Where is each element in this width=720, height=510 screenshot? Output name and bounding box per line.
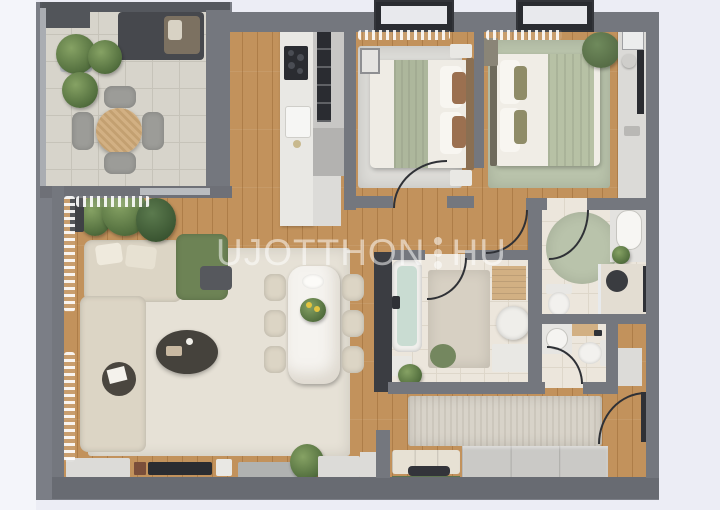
bedroom1-mirror [360,48,380,74]
bedroom1-window [374,0,454,32]
shower-toilet-bowl [548,292,570,316]
tv-console [66,458,130,478]
terrace-round-table [96,108,142,154]
terrace-chair-top [104,86,136,108]
wall-entry-living-stub [376,430,390,478]
kitchen-cabinet-gray [313,128,347,176]
shower-washbasin [616,210,642,250]
bathroom-round-seat [496,306,530,340]
bedroom1-headboard [466,58,474,170]
kitchen-faucet [293,140,301,148]
watermark-dots-icon [434,237,442,269]
wall-wc-right [606,320,618,386]
terrace-plant-2 [88,40,122,74]
room-entrance [408,396,602,446]
bedroom2-vanity-mirror [622,30,644,50]
dining-chair-r2 [342,310,364,337]
cabinet-bottom-right [318,456,360,478]
bedroom2-stool [622,54,636,68]
bedroom2-blanket [548,54,594,166]
living-curtain-left-1 [64,196,75,312]
entrance-door-leaf [641,392,646,442]
cooktop-burner-1 [288,50,294,56]
bedroom1-nightstand-bottom [450,170,472,186]
media-box [216,459,232,476]
bathtub-water [397,266,417,346]
kitchen-oven-stack [317,30,331,122]
wall-bedroom1-south-b [447,196,474,208]
wall-bedroom1-south-a [356,196,393,208]
terrace-plant-3 [62,72,98,108]
bedroom1-nightstand-top [450,44,472,58]
living-curtain-top [76,196,150,207]
terrace-sliding-door [140,188,210,195]
coffee-table-cup [186,338,193,345]
bedroom2-accent-pillow-2 [514,110,527,144]
bedroom1-window-glass [381,6,447,24]
wall-right-outer [646,12,659,478]
bedroom2-tv [637,50,644,114]
bedroom2-curtain [486,30,562,40]
wall-terrace-top-corner [42,2,90,28]
kitchen-cabinet-white [313,176,341,226]
bouquet-flower-2 [314,306,320,312]
wall-shower-wc-divider [538,314,646,324]
wall-bottom-outer [52,477,659,499]
dining-bouquet [300,298,326,322]
watermark: UJOTTHON HU [216,232,507,274]
terrace-chair-bottom [104,152,136,174]
wc-towel-item [594,330,602,336]
dining-chair-r3 [342,346,364,373]
entrance-tall-cabinet [618,348,642,386]
sofa-pillow-1 [95,242,124,265]
wall-bath-south-a [388,382,545,394]
wall-bathroom-shower-divider [528,208,542,392]
bedroom1-accent-pillow-2 [452,116,466,148]
terrace-lounge-pillow [168,20,182,40]
dining-plate [302,274,324,289]
dining-chair-l2 [264,310,286,337]
dining-chair-l3 [264,346,286,373]
bedroom2-desk-items [624,126,640,136]
bathroom-storage [492,344,530,372]
cooktop-burner-4 [297,68,303,74]
bedroom2-headboard [490,54,497,166]
wall-bath-south-b [583,382,618,394]
background-left [0,0,36,510]
cooktop-burner-3 [288,62,295,69]
bouquet-flower-1 [306,302,312,308]
tv-soundbar [148,462,212,475]
shower-drain-stool [606,270,628,292]
terrace-chair-right [142,112,164,150]
kitchen-sink [285,106,311,138]
wc-toilet-bowl [578,342,602,364]
bathroom-pouf [430,344,456,368]
bedroom1-curtain [358,30,450,40]
dining-chair-l1 [264,274,286,301]
bedroom2-window-glass [523,6,587,24]
living-curtain-left-2 [64,352,75,462]
bedroom2-pouf [582,32,620,68]
bedroom2-window [516,0,594,32]
bedroom1-blanket [394,60,428,168]
entrance-wardrobe [462,446,608,478]
wall-bedroom-divider [474,12,484,168]
entrance-shoes [408,466,450,476]
watermark-text-left: UJOTTHON [216,232,425,274]
bathtub-faucet [392,296,400,309]
coffee-table-book [166,346,182,356]
wall-kitchen-bedroom1 [344,12,356,210]
wall-terrace-left-rim [40,8,46,190]
console-books [134,462,146,475]
watermark-text-right: HU [451,232,506,274]
shower-glass-panel [598,264,601,318]
bedroom1-accent-pillow-1 [452,72,466,104]
cooktop-burner-2 [297,54,304,61]
bedroom2-accent-pillow-1 [514,66,527,100]
bedroom2-nightstand [482,38,498,66]
wall-terrace-right [206,10,230,190]
dining-chair-r1 [342,274,364,301]
terrace-chair-left [72,112,94,150]
wall-left-outer [52,186,64,481]
floorplan-render: UJOTTHON HU [0,0,720,510]
sofa-pillow-2 [125,244,157,269]
wall-bedroom2-south-b [587,198,646,210]
shower-vanity-plant [612,246,630,264]
